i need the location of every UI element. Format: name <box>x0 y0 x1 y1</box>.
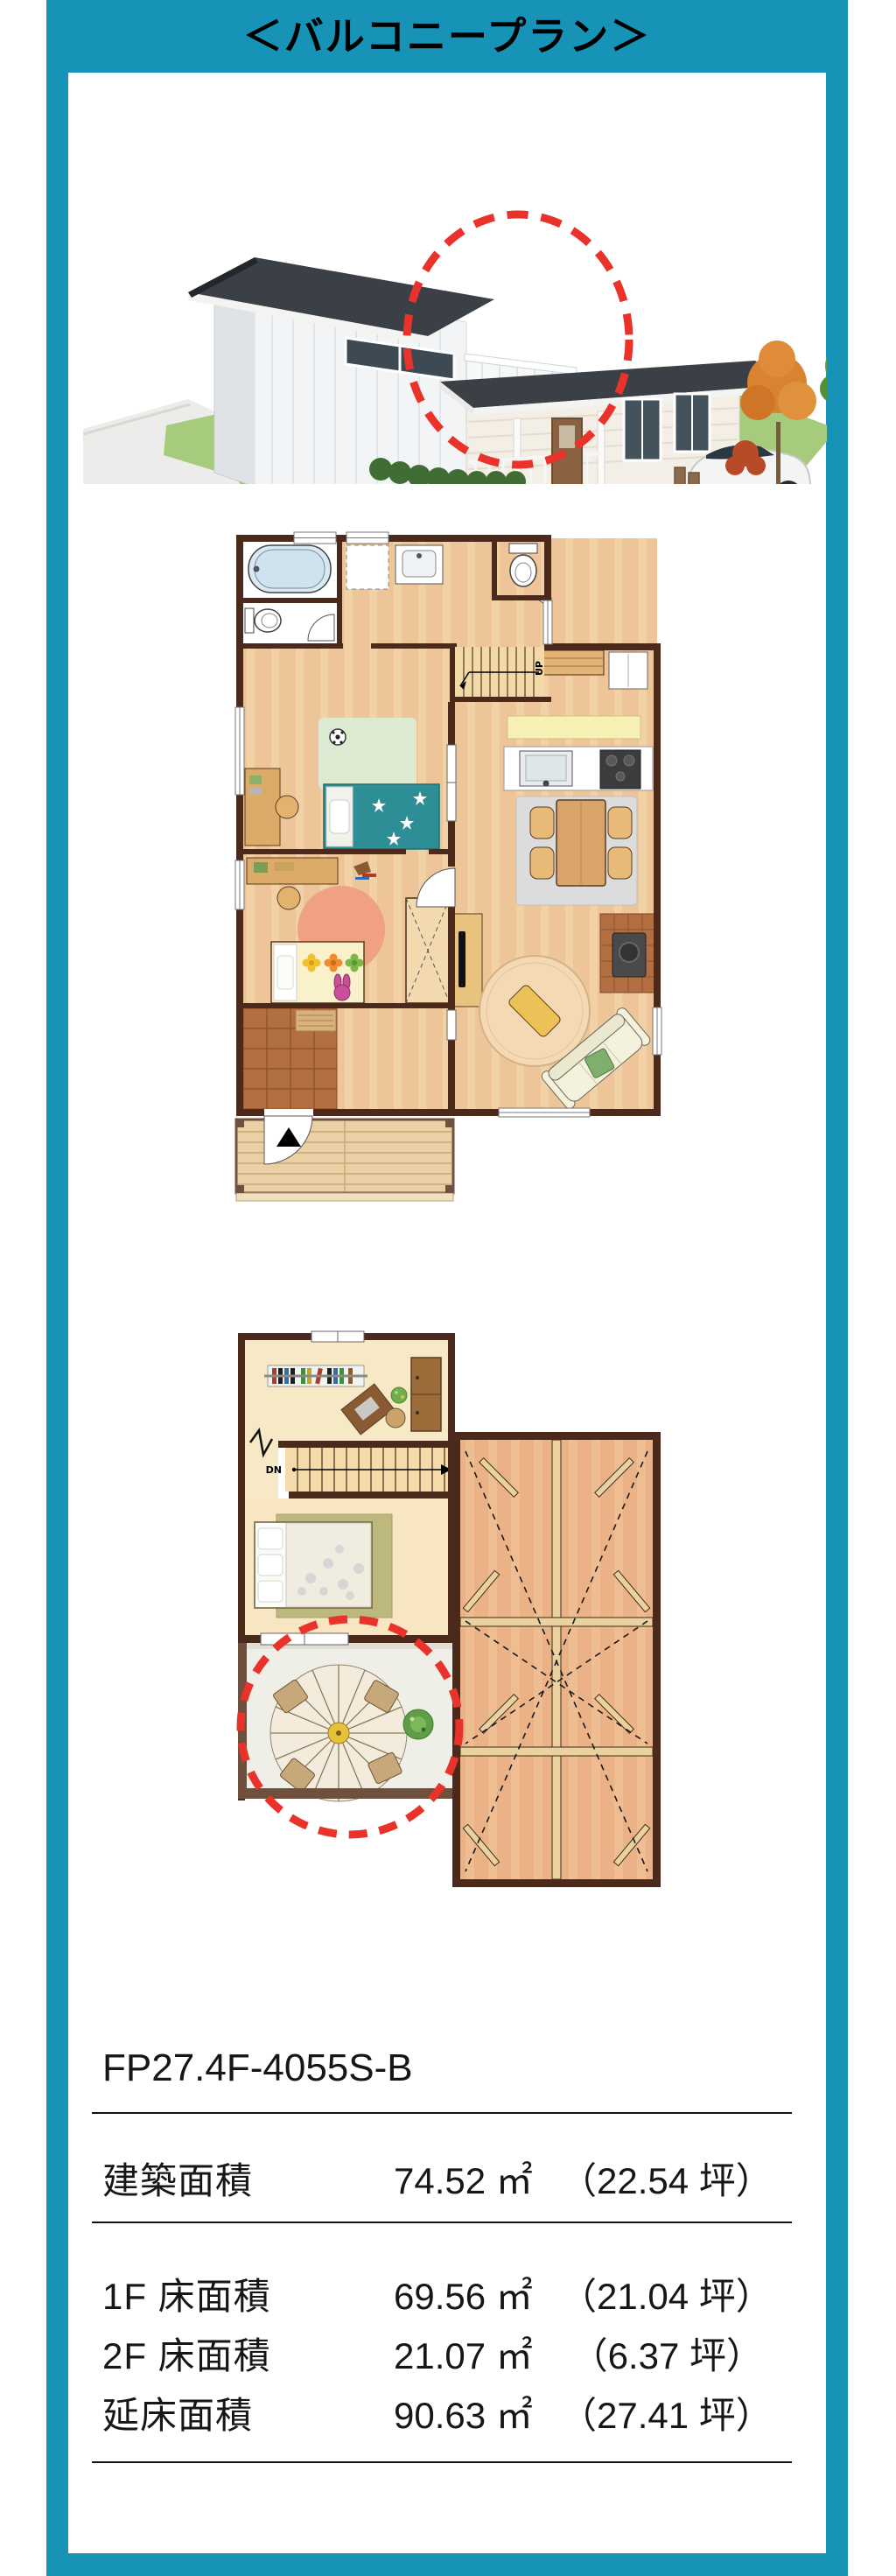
double-bed <box>255 1522 372 1608</box>
page-title: ＜バルコニープラン＞ <box>46 0 848 73</box>
flyer-page: ＜バルコニープラン＞ <box>0 0 896 2576</box>
bedroom <box>255 1514 392 1618</box>
front-door-opening <box>264 1109 313 1116</box>
plan-code: FP27.4F-4055S-B <box>102 2046 413 2090</box>
house-exterior-render <box>83 77 827 484</box>
divider <box>92 2112 792 2114</box>
stairs-down: DN <box>266 1448 455 1492</box>
divider <box>92 2222 792 2223</box>
balcony-plant-icon <box>403 1709 433 1739</box>
spec-row-total-area: 延床面積 90.63 ㎡ （27.41 坪） <box>0 2386 896 2439</box>
toilet <box>245 608 281 633</box>
tv-board <box>452 914 482 1007</box>
spec-row-2f-area: 2F 床面積 21.07 ㎡ （6.37 坪） <box>0 2327 896 2380</box>
hobby-chair <box>386 1408 405 1428</box>
spec-tsubo: （21.04 坪） <box>560 2267 763 2320</box>
wardrobe-closet <box>411 1358 441 1431</box>
balcony-2f <box>247 1643 452 1801</box>
stairs-up-label: UP <box>534 661 545 676</box>
hobby-plant-icon <box>391 1387 407 1403</box>
house-2f-block <box>188 257 494 484</box>
spec-sqm: 90.63 ㎡ <box>394 2386 560 2439</box>
first-floor-plan: UP <box>191 523 663 1215</box>
spec-sqm: 21.07 ㎡ <box>394 2327 560 2380</box>
green-rug <box>318 718 416 790</box>
wc-tank <box>509 544 537 553</box>
washroom <box>241 603 337 643</box>
flower-pattern <box>303 954 364 972</box>
dining-area <box>516 797 637 905</box>
kids-bed-flower <box>271 942 364 1003</box>
roof-area <box>460 1440 653 1879</box>
spec-tsubo: （22.54 坪） <box>560 2151 763 2205</box>
desk-chair <box>276 796 298 818</box>
stairs-up: UP <box>455 647 545 697</box>
stairs-down-label: DN <box>266 1464 282 1476</box>
spec-label: 建築面積 <box>102 2151 394 2205</box>
washbasin <box>395 545 443 584</box>
spec-label: 延床面積 <box>102 2386 394 2439</box>
heater-on-tile-mat <box>600 914 656 993</box>
frame-bottom-border <box>46 2553 848 2576</box>
spec-label: 2F 床面積 <box>102 2327 394 2380</box>
tv-icon <box>458 931 465 987</box>
spec-sqm: 74.52 ㎡ <box>394 2151 560 2205</box>
bath-faucet-icon <box>254 566 260 572</box>
kitchen-counter-bar <box>507 716 640 739</box>
desk-chair-2 <box>277 887 300 909</box>
soccer-ball-icon <box>330 729 346 745</box>
spec-row-building-area: 建築面積 74.52 ㎡ （22.54 坪） <box>0 2151 896 2205</box>
spec-sqm: 69.56 ㎡ <box>394 2267 560 2320</box>
entrance <box>243 1008 337 1109</box>
second-floor-plan: DN <box>236 1329 665 1941</box>
washer-space <box>346 545 388 589</box>
kids2-closet <box>406 898 450 1003</box>
spec-tsubo: （6.37 坪） <box>560 2327 763 2380</box>
stove-cooktop <box>600 750 640 789</box>
spec-label: 1F 床面積 <box>102 2267 394 2320</box>
bathroom <box>241 540 337 598</box>
sink-faucet-icon <box>543 781 549 787</box>
hall-door <box>447 1010 456 1040</box>
bookshelf <box>264 1365 367 1386</box>
spec-tsubo: （27.41 坪） <box>560 2386 763 2439</box>
divider <box>92 2461 792 2463</box>
front-door-window <box>559 425 575 448</box>
spec-row-1f-area: 1F 床面積 69.56 ㎡ （21.04 坪） <box>0 2267 896 2320</box>
kids-bed-teal <box>324 784 439 849</box>
green-tree <box>820 326 827 483</box>
